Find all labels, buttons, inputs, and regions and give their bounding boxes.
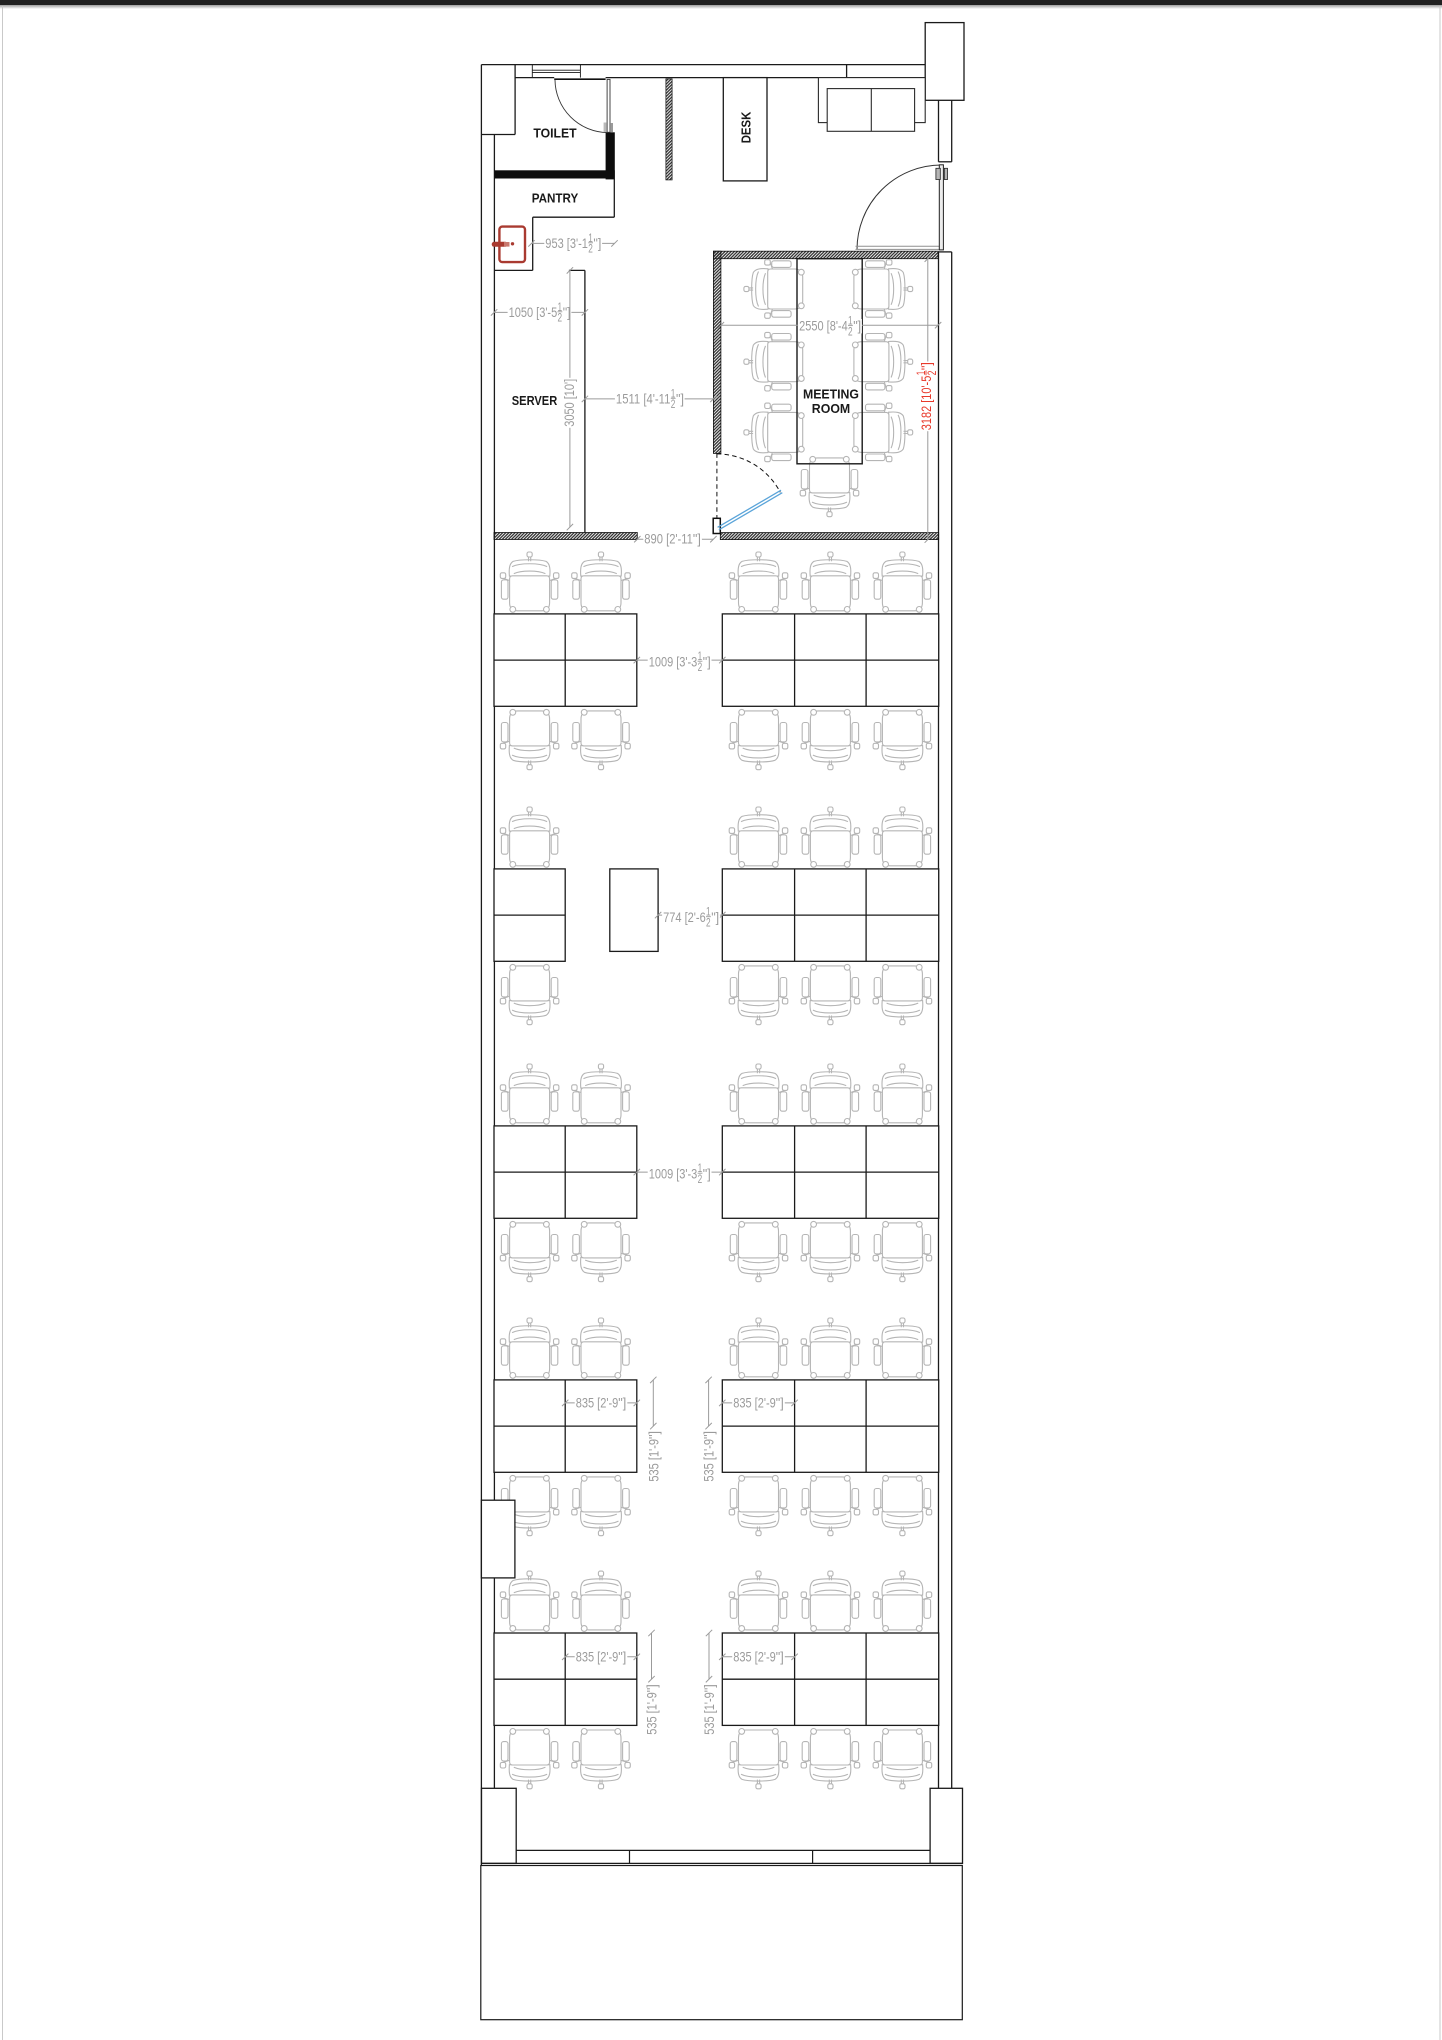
svg-text:774 [2'-6: 774 [2'-6 <box>663 909 706 925</box>
svg-text:2: 2 <box>588 244 593 256</box>
svg-text:1009 [3'-3: 1009 [3'-3 <box>649 653 698 669</box>
svg-text:"]: "] <box>645 1431 661 1439</box>
svg-text:835 [2'-9: 835 [2'-9 <box>733 1648 776 1664</box>
svg-text:PANTRY: PANTRY <box>532 192 579 206</box>
svg-text:2550 [8'-4: 2550 [8'-4 <box>799 318 848 334</box>
svg-text:835 [2'-9: 835 [2'-9 <box>576 1648 619 1664</box>
svg-text:1009 [3'-3: 1009 [3'-3 <box>649 1165 698 1181</box>
svg-text:"]: "] <box>853 318 861 334</box>
svg-text:"]: "] <box>618 1394 626 1410</box>
svg-text:TOILET: TOILET <box>533 127 577 141</box>
svg-text:535 [1'-9: 535 [1'-9 <box>701 1439 717 1482</box>
svg-text:"]: "] <box>644 1684 660 1692</box>
svg-text:3050 [10']: 3050 [10'] <box>561 379 577 427</box>
svg-text:"]: "] <box>776 1648 784 1664</box>
svg-text:2: 2 <box>671 399 676 411</box>
svg-text:"]: "] <box>676 390 684 406</box>
svg-text:535 [1'-9: 535 [1'-9 <box>701 1692 717 1735</box>
svg-text:"]: "] <box>693 531 701 547</box>
svg-text:2: 2 <box>706 918 711 930</box>
svg-text:"]: "] <box>703 653 711 669</box>
svg-text:2: 2 <box>698 662 703 674</box>
svg-text:"]: "] <box>593 235 601 251</box>
svg-text:535 [1'-9: 535 [1'-9 <box>645 1439 661 1482</box>
svg-text:"]: "] <box>776 1394 784 1410</box>
svg-text:835 [2'-9: 835 [2'-9 <box>733 1394 776 1410</box>
svg-text:SERVER: SERVER <box>512 394 558 408</box>
svg-text:890 [2'-11: 890 [2'-11 <box>644 531 693 547</box>
svg-text:1511 [4'-11: 1511 [4'-11 <box>616 390 671 406</box>
svg-text:"]: "] <box>701 1431 717 1439</box>
svg-text:"]: "] <box>618 1648 626 1664</box>
svg-text:"]: "] <box>711 909 719 925</box>
svg-text:2: 2 <box>848 327 853 339</box>
svg-text:MEETING: MEETING <box>803 388 859 402</box>
svg-text:"]: "] <box>701 1684 717 1692</box>
svg-text:ROOM: ROOM <box>812 402 850 416</box>
svg-text:"]: "] <box>918 362 934 370</box>
svg-text:1050 [3'-5: 1050 [3'-5 <box>509 304 558 320</box>
svg-text:"]: "] <box>703 1165 711 1181</box>
svg-text:535 [1'-9: 535 [1'-9 <box>644 1692 660 1735</box>
svg-text:2: 2 <box>558 313 563 325</box>
svg-text:953 [3'-1: 953 [3'-1 <box>545 235 588 251</box>
svg-text:DESK: DESK <box>740 112 754 144</box>
svg-text:835 [2'-9: 835 [2'-9 <box>576 1394 619 1410</box>
svg-text:3182 [10'-5: 3182 [10'-5 <box>918 376 934 431</box>
svg-text:2: 2 <box>698 1174 703 1186</box>
svg-text:2: 2 <box>927 371 939 376</box>
